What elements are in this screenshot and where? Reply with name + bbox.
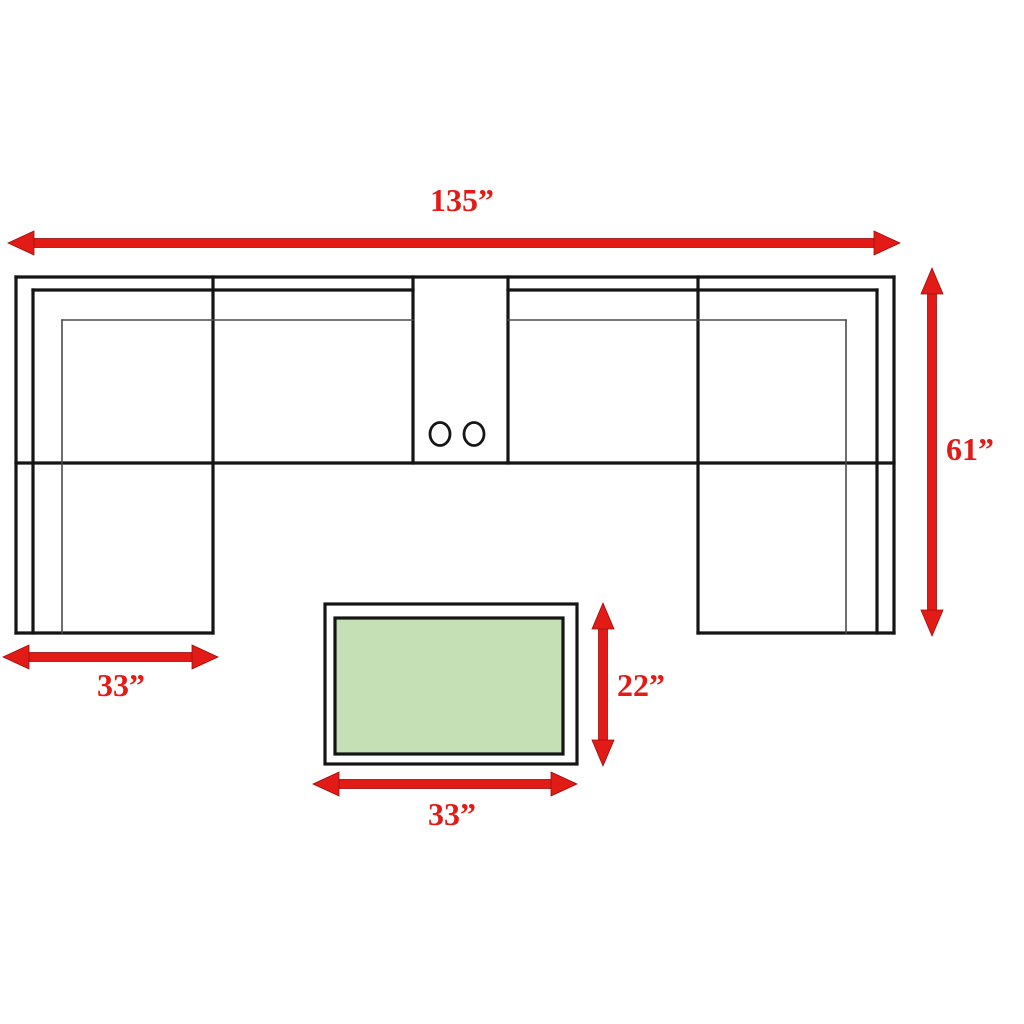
cupholder-right-icon — [464, 423, 484, 446]
table-depth-label: 22” — [617, 667, 665, 703]
arrow-shaft — [337, 780, 553, 789]
table-depth-dimension-arrow — [592, 603, 614, 766]
coffee-table — [325, 604, 577, 764]
sofa-depth-dimension-arrow — [921, 268, 943, 636]
sofa-depth-label: 61” — [946, 431, 994, 467]
console-cupholders — [430, 423, 484, 446]
arrow-up-head-icon — [921, 268, 943, 294]
arrow-shaft — [599, 627, 608, 743]
cupholder-left-icon — [430, 423, 450, 446]
coffee-table-glass-top — [335, 618, 563, 754]
sofa-width-dimension-arrow — [8, 231, 900, 255]
table-width-dimension-arrow — [313, 772, 577, 796]
arrow-left-head-icon — [3, 645, 29, 669]
arrow-left-head-icon — [313, 772, 339, 796]
arrow-shaft — [27, 653, 194, 662]
arrow-right-head-icon — [874, 231, 900, 255]
arrow-up-head-icon — [592, 603, 614, 629]
arrow-right-head-icon — [551, 772, 577, 796]
diagram-canvas: 135” 61” 33” 22” 33” — [0, 0, 1024, 1024]
chaise-width-label: 33” — [97, 667, 145, 703]
sectional-sofa-outline — [16, 277, 894, 633]
arrow-left-head-icon — [8, 231, 34, 255]
chaise-width-dimension-arrow — [3, 645, 218, 669]
sofa-width-label: 135” — [430, 182, 494, 218]
table-width-label: 33” — [428, 796, 476, 832]
arrow-right-head-icon — [192, 645, 218, 669]
arrow-shaft — [928, 292, 937, 613]
arrow-down-head-icon — [592, 740, 614, 766]
dimension-diagram: 135” 61” 33” 22” 33” — [0, 0, 1024, 1024]
arrow-down-head-icon — [921, 610, 943, 636]
arrow-shaft — [32, 239, 876, 248]
